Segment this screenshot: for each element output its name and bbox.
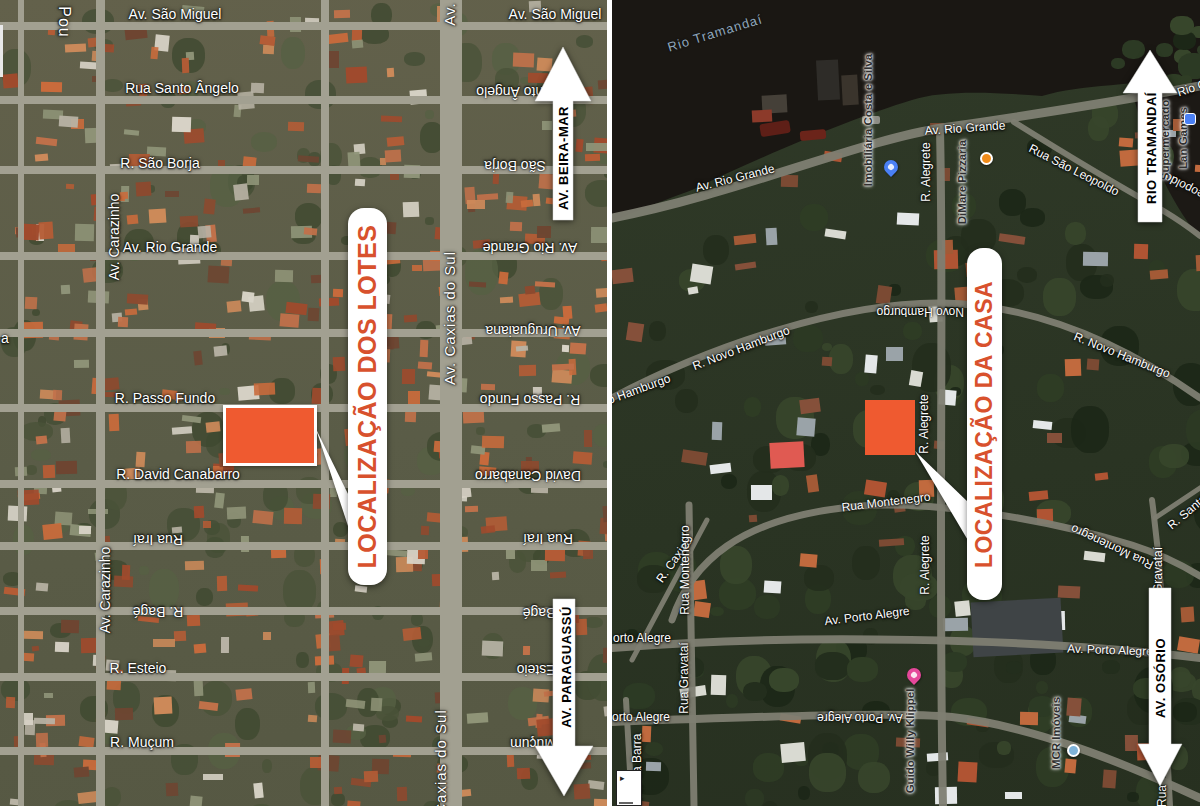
- panel-divider: [607, 0, 612, 806]
- arrow-label: RIO TRAMANDAÍ: [1144, 92, 1159, 204]
- map-panel-lotes[interactable]: Av. São MiguelAv. São MiguelRua Santo Ân…: [0, 0, 607, 806]
- arrow-label: AV. BEIRA-MAR: [556, 106, 571, 210]
- screenshot-root: Av. São MiguelAv. São MiguelRua Santo Ân…: [0, 0, 1200, 806]
- arrow-labels: AV. BEIRA-MARAV. PARAGUASSÚ: [0, 0, 607, 806]
- arrow-label: AV. OSÓRIO: [1153, 638, 1168, 718]
- map-panel-casa[interactable]: Av. Rio GrandeAv. Rio GrandeRio GRua São…: [612, 0, 1200, 806]
- map-corner-control[interactable]: ▸: [616, 770, 642, 806]
- arrow-labels: RIO TRAMANDAÍAV. OSÓRIO: [612, 0, 1200, 806]
- arrow-label: AV. PARAGUASSÚ: [559, 606, 574, 728]
- corner-glyph: ▸: [620, 774, 625, 783]
